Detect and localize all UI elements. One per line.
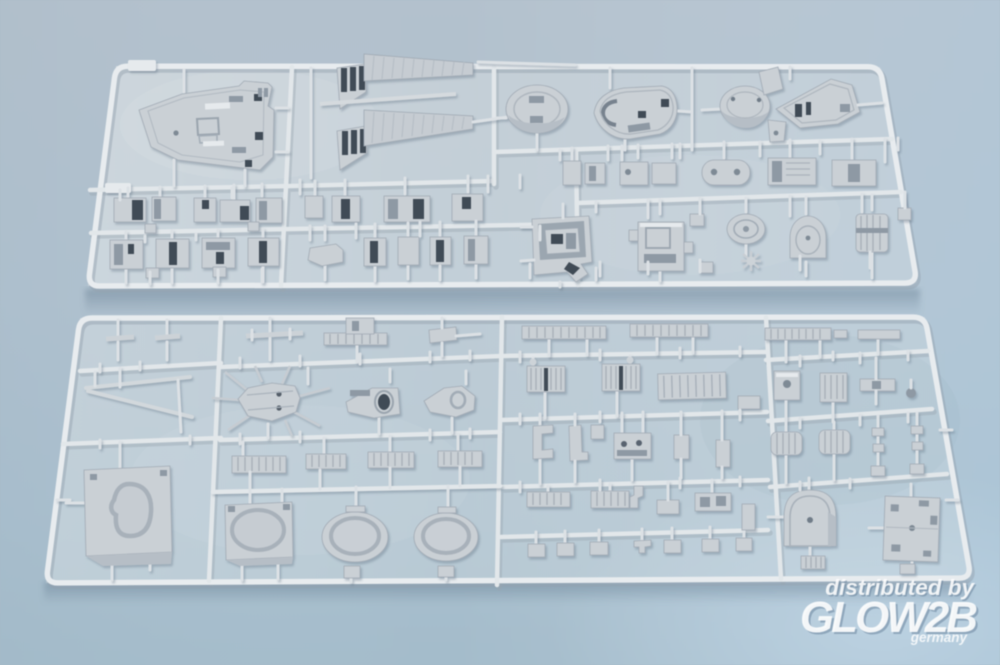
svg-text:germany: germany [910, 630, 969, 645]
